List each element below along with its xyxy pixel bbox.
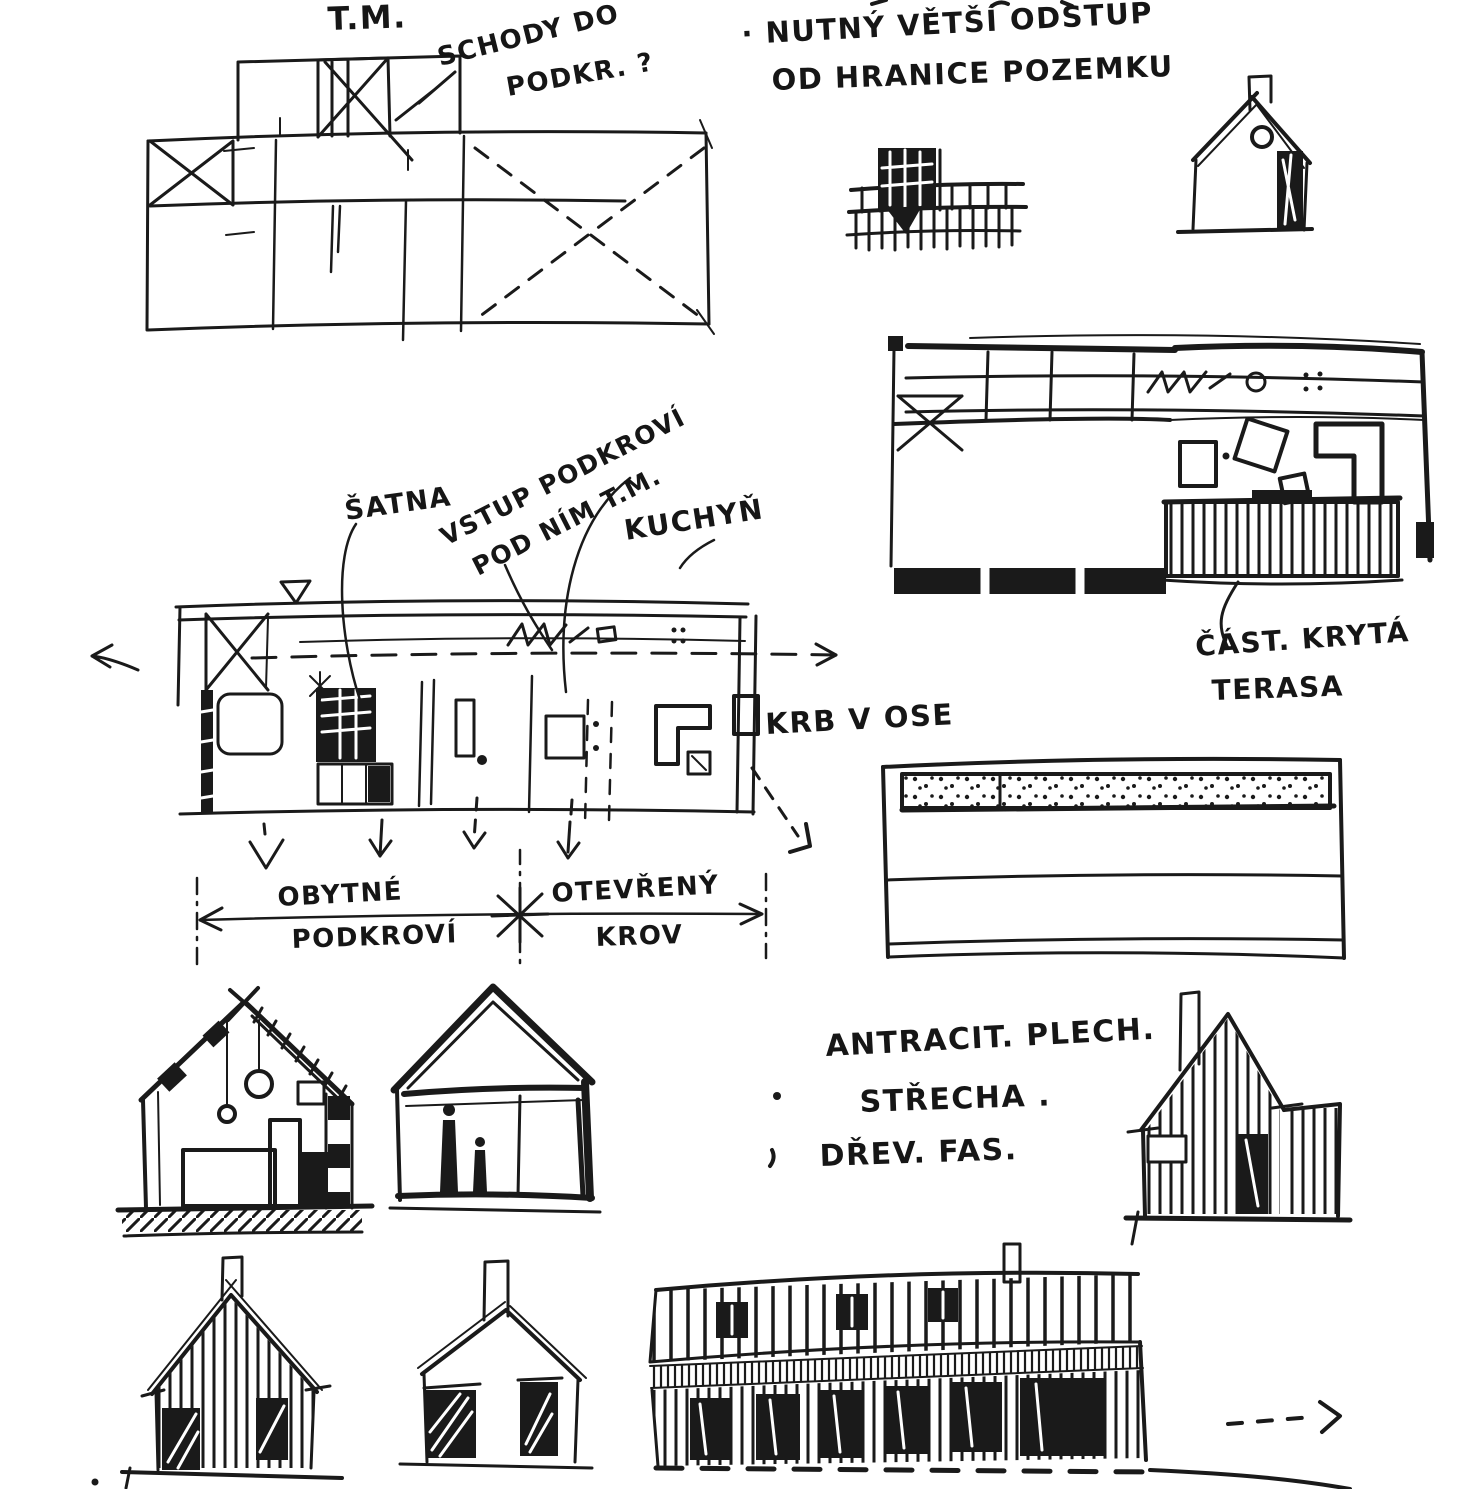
stairs-note: SCHODY DO PODKR. ? bbox=[434, 0, 656, 103]
bullet-mark bbox=[773, 1092, 781, 1100]
bottom-striped-house-sketch bbox=[92, 1257, 343, 1488]
terrace-line1: ČÁST. KRYTÁ bbox=[1194, 614, 1411, 663]
striped-house-elevation-sketch bbox=[1126, 992, 1350, 1244]
dim-left-line1: OBYTNÉ bbox=[277, 874, 404, 913]
cross-section-2-sketch bbox=[390, 987, 600, 1212]
ground-floor-plan-sketch bbox=[888, 335, 1434, 648]
tm-text: T.M. bbox=[327, 0, 407, 38]
dim-right-line1: OTEVŘENÝ bbox=[551, 868, 721, 909]
setback-note: · NUTNÝ VĚTŠÍ ODSTUP OD HRANICE POZEMKU bbox=[741, 0, 1175, 97]
bullet-mark bbox=[770, 1150, 774, 1166]
long-elevation-band-sketch bbox=[883, 759, 1344, 958]
material-line2: STŘECHA . bbox=[859, 1077, 1051, 1120]
attic-floor-plan-sketch bbox=[147, 56, 714, 340]
fence-gate-sketch bbox=[847, 148, 1026, 250]
material-line3: DŘEV. FAS. bbox=[819, 1131, 1018, 1174]
kitchen-label: KUCHYŇ bbox=[622, 491, 766, 547]
tm-label: T.M. bbox=[327, 0, 407, 38]
sketch-page: T.M. SCHODY DO PODKR. ? · NUTNÝ VĚTŠÍ OD… bbox=[0, 0, 1472, 1489]
setback-line2: OD HRANICE POZEMKU bbox=[771, 49, 1174, 97]
dim-left-line2: PODKROVÍ bbox=[291, 917, 458, 955]
bottom-plain-house-sketch bbox=[400, 1261, 592, 1468]
fireplace-axis-label: KRB V OSE bbox=[765, 697, 955, 741]
cross-section-1-sketch bbox=[118, 988, 372, 1236]
setback-line1: · NUTNÝ VĚTŠÍ ODSTUP bbox=[741, 0, 1154, 51]
material-notes: ANTRACIT. PLECH. STŘECHA . DŘEV. FAS. bbox=[770, 1012, 1156, 1174]
sketch-canvas: T.M. SCHODY DO PODKR. ? · NUTNÝ VĚTŠÍ OD… bbox=[0, 0, 1472, 1489]
material-line1: ANTRACIT. PLECH. bbox=[825, 1012, 1157, 1064]
stairs-note-line2: PODKR. ? bbox=[504, 47, 656, 102]
terrace-line2: TERASA bbox=[1211, 669, 1344, 707]
dim-right-line2: KROV bbox=[595, 920, 684, 953]
long-house-elevation-sketch bbox=[650, 1244, 1350, 1489]
terrace-note: ČÁST. KRYTÁ TERASA bbox=[1194, 614, 1411, 707]
gable-house-elevation-sketch bbox=[1178, 76, 1312, 232]
dimension-line: OBYTNÉ PODKROVÍ OTEVŘENÝ KROV bbox=[197, 850, 766, 968]
pantry-label: ŠATNA bbox=[343, 480, 454, 527]
